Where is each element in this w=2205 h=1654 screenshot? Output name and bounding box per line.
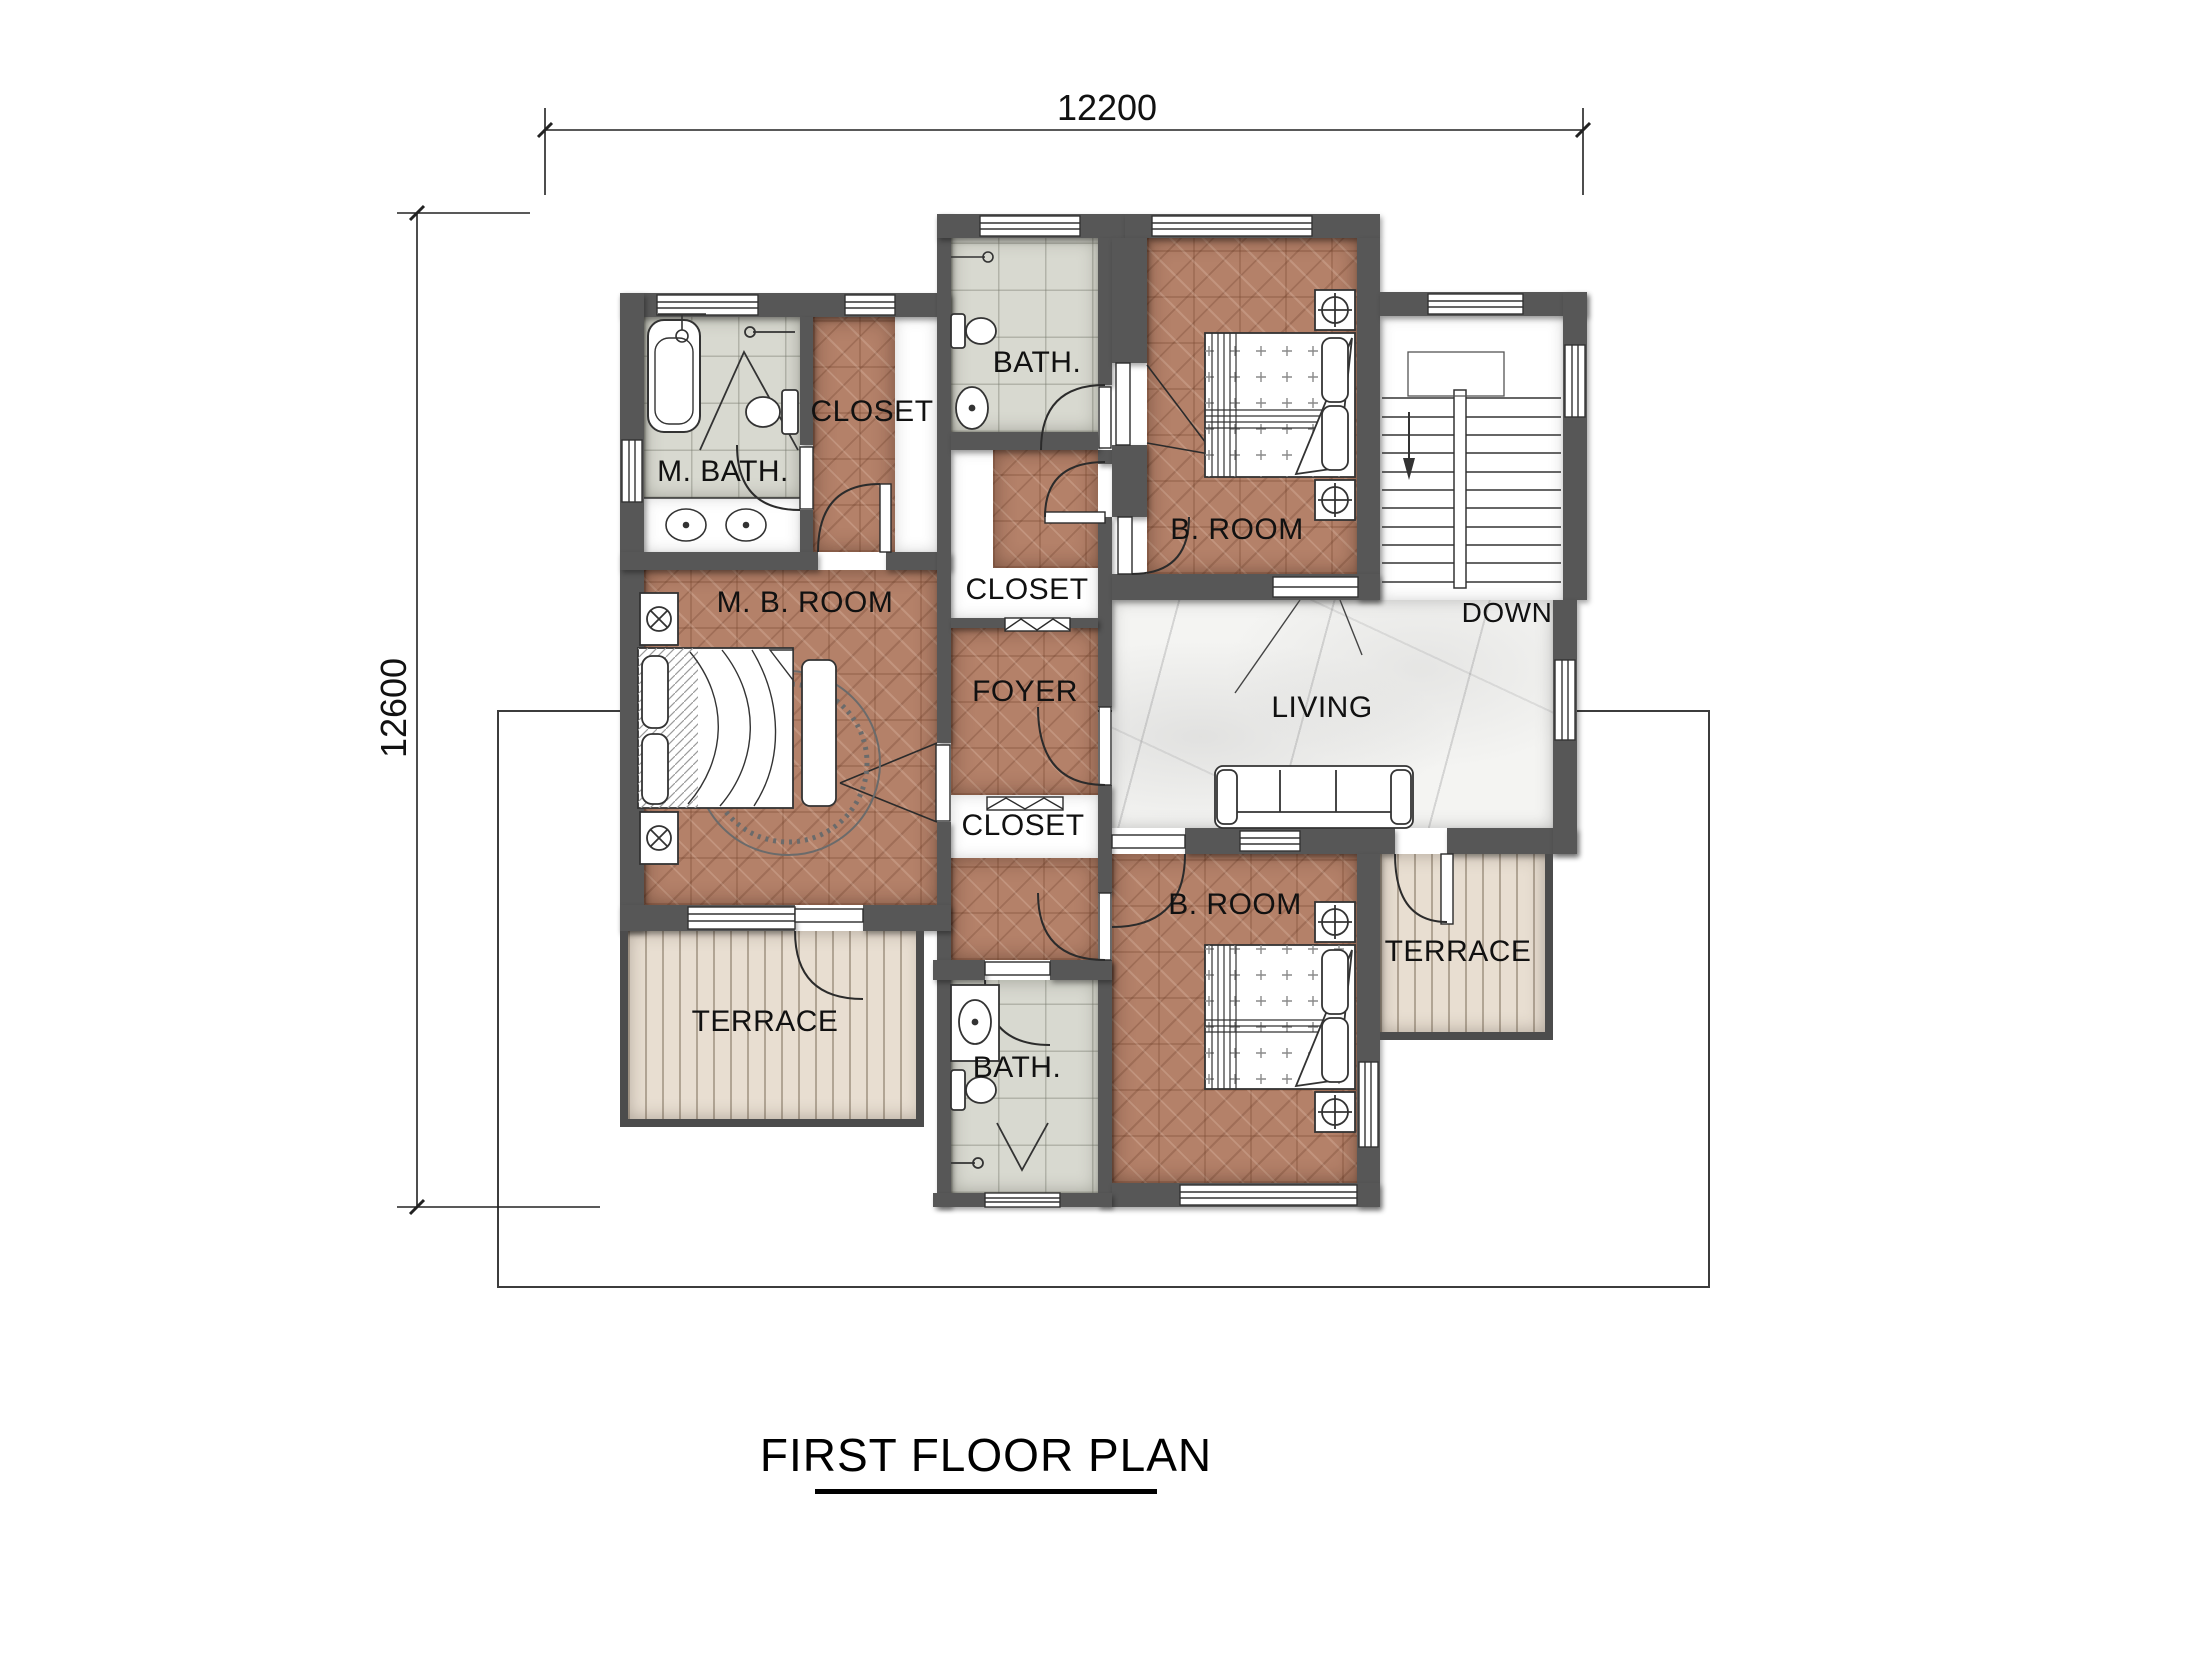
room-label-m-bath: M. BATH. [657, 457, 789, 487]
room-label-closet-bot: CLOSET [961, 811, 1084, 841]
window-symbol [845, 295, 895, 315]
vanity-sinks [644, 498, 800, 541]
door-swing [1041, 385, 1111, 450]
shower-arm [951, 252, 993, 262]
bathtub [648, 314, 706, 432]
nightstand [1315, 290, 1355, 330]
shower-enclosure [951, 1123, 1048, 1170]
staircase [1382, 352, 1561, 588]
window-symbol [1565, 345, 1585, 417]
bed [1205, 333, 1355, 477]
room-label-down: DOWN [1462, 599, 1553, 627]
door-swing [818, 484, 891, 552]
room-label-bath-top: BATH. [993, 348, 1082, 378]
toilet [951, 314, 996, 348]
door-swing [840, 743, 950, 822]
nightstand [1315, 480, 1355, 520]
door-swing [1116, 363, 1215, 455]
speaker-box [640, 812, 678, 864]
window-symbol [1273, 577, 1358, 597]
room-label-closet-top: CLOSET [810, 397, 933, 427]
room-label-closet-mid: CLOSET [965, 575, 1088, 605]
window-symbol [657, 295, 758, 315]
bed-bench [802, 660, 836, 806]
room-label-terrace-left: TERRACE [692, 1007, 839, 1037]
speaker-box [640, 593, 678, 645]
room-label-living: LIVING [1271, 693, 1372, 723]
window-symbol [1555, 660, 1575, 740]
room-label-mb-room: M. B. ROOM [717, 588, 894, 618]
door-swing [1045, 462, 1105, 523]
window-symbol [1152, 216, 1312, 236]
bifold-door [1005, 618, 1070, 631]
master-bed [638, 648, 793, 808]
room-label-foyer: FOYER [972, 677, 1078, 707]
title-underline [815, 1489, 1157, 1494]
window-symbol [985, 1193, 1060, 1207]
plan-linework [0, 0, 2205, 1654]
window-symbol [1428, 294, 1523, 314]
floor-plan-canvas: M. BATH. CLOSET BATH. B. ROOM DOWN CLOSE… [0, 0, 2205, 1654]
door-swing [795, 909, 863, 999]
window-symbol [980, 216, 1080, 236]
room-label-broom-bot: B. ROOM [1168, 890, 1302, 920]
room-label-broom-top: B. ROOM [1170, 515, 1304, 545]
room-label-terrace-right: TERRACE [1385, 937, 1532, 967]
nightstand [1315, 1092, 1355, 1132]
page-title: FIRST FLOOR PLAN [760, 1432, 1212, 1478]
sink-counter [951, 985, 999, 1061]
window-symbol [688, 907, 795, 929]
bed [1205, 945, 1355, 1089]
sink [956, 387, 988, 429]
sofa [1215, 766, 1413, 828]
dimension-height-label: 12600 [376, 658, 412, 758]
window-symbol [1240, 831, 1300, 851]
toilet [746, 390, 798, 434]
door-swing [1038, 707, 1111, 785]
window-symbol [1180, 1185, 1357, 1205]
room-label-bath-bot: BATH. [973, 1053, 1062, 1083]
ceiling-lines [1235, 600, 1362, 693]
door-swing [1395, 854, 1453, 924]
nightstand [1315, 902, 1355, 942]
dimension-width-label: 12200 [1057, 90, 1157, 126]
door-swing [1038, 893, 1111, 960]
window-symbol [1359, 1062, 1378, 1147]
window-symbol [622, 440, 642, 502]
